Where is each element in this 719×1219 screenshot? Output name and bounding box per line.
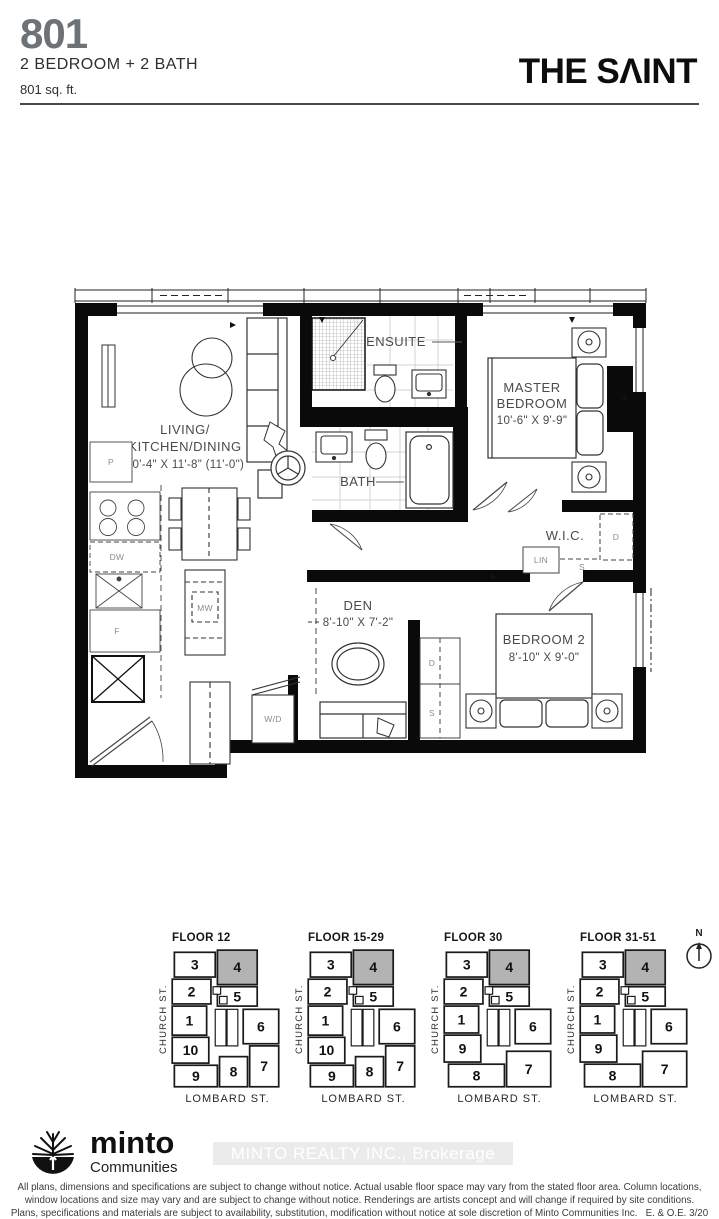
header-divider xyxy=(20,103,699,105)
keyplan-unit-number: 8 xyxy=(230,1064,238,1080)
keyplan-unit-number: 6 xyxy=(665,1018,673,1034)
unit-number: 801 xyxy=(20,10,87,58)
tv-console xyxy=(102,345,115,407)
keyplan-core xyxy=(621,987,629,995)
shower xyxy=(312,318,365,390)
keyplan-core xyxy=(628,996,636,1004)
eoe-note: E. & O.E. 3/20 xyxy=(646,1208,709,1219)
bath-toilet xyxy=(365,430,387,469)
keyplan-floor-3: FLOOR 30CHURCH ST.342516987LOMBARD ST. xyxy=(430,932,557,1105)
svg-text:LIVING/: LIVING/ xyxy=(160,422,210,437)
microwave-label: MW xyxy=(197,603,213,613)
keyplan-unit-number: 4 xyxy=(505,959,513,975)
keyplan-unit-number: 2 xyxy=(596,983,604,999)
keyplan-unit-number: 2 xyxy=(188,983,196,999)
keyplan-core xyxy=(356,996,364,1004)
keyplan-unit-number: 9 xyxy=(595,1040,603,1056)
keyplan-unit-number: 3 xyxy=(463,957,471,973)
lombard-street-label: LOMBARD ST. xyxy=(442,1093,557,1105)
keyplan-unit-number: 3 xyxy=(191,957,199,973)
bedroom2-closet xyxy=(420,638,460,738)
bedroom2-nightstands xyxy=(466,694,622,728)
keyplan-unit-number: 8 xyxy=(473,1067,481,1083)
entry-closet xyxy=(190,682,230,764)
window-band xyxy=(75,288,646,303)
keyplan-unit-number: 3 xyxy=(327,957,335,973)
keyplan-title: FLOOR 31-51 xyxy=(580,932,693,944)
bath-sink xyxy=(316,432,352,462)
svg-text:20'-4" X 11'-8" (11'-0"): 20'-4" X 11'-8" (11'-0") xyxy=(126,459,244,471)
unit-type: 2 BEDROOM + 2 BATH xyxy=(20,56,198,74)
ensuite-sink xyxy=(412,370,446,398)
hall-door xyxy=(330,524,362,550)
washer-dryer-label: W/D xyxy=(264,714,281,724)
minto-tree-icon xyxy=(28,1126,78,1176)
disclaimer-line-3: Plans, specifications and materials are … xyxy=(8,1208,711,1219)
keyplan-map: 342516987 xyxy=(442,948,554,1090)
bed2-dresser-label: D xyxy=(429,658,435,668)
logo-subtitle: Communities xyxy=(90,1159,178,1176)
dining-table xyxy=(169,488,250,560)
fridge-label: F xyxy=(114,626,120,636)
bathtub xyxy=(406,432,453,508)
keyplan-unit-number: 9 xyxy=(328,1068,336,1084)
keyplan-unit-number: 8 xyxy=(366,1064,374,1080)
keyplan-unit-number: 5 xyxy=(369,988,377,1004)
master-label: MASTER BEDROOM 10'-6" X 9'-9" xyxy=(497,380,568,427)
keyplan-unit-number: 9 xyxy=(459,1040,467,1056)
keyplan-title: FLOOR 15-29 xyxy=(308,932,421,944)
church-street-label: CHURCH ST. xyxy=(294,948,306,1090)
keyplan-core xyxy=(623,1009,634,1046)
shaft-column xyxy=(92,656,144,702)
brand-logo: THE SΛINT xyxy=(519,52,697,92)
keyplan-title: FLOOR 12 xyxy=(172,932,285,944)
keyplan-core xyxy=(227,1009,238,1046)
keyplan-floor-4: FLOOR 31-51CHURCH ST.342516987LOMBARD ST… xyxy=(566,932,693,1105)
bed2-shelf-label: S xyxy=(429,708,435,718)
church-street-label: CHURCH ST. xyxy=(430,948,442,1090)
keyplan-unit-number: 8 xyxy=(609,1067,617,1083)
keyplan-core xyxy=(485,987,493,995)
keyplans-row: FLOOR 12CHURCH ST.34251610987LOMBARD ST.… xyxy=(158,932,693,1105)
disclaimer-text: All plans, dimensions and specifications… xyxy=(8,1182,711,1219)
master-door xyxy=(473,482,507,510)
lombard-street-label: LOMBARD ST. xyxy=(170,1093,285,1105)
keyplan-unit-number: 7 xyxy=(396,1058,404,1074)
keyplan-core xyxy=(349,987,357,995)
keyplan-unit-number: 1 xyxy=(594,1011,602,1027)
lombard-street-label: LOMBARD ST. xyxy=(306,1093,421,1105)
entry-door xyxy=(90,717,163,766)
keyplan-core xyxy=(487,1009,498,1046)
svg-text:8'-10" X 9'-0": 8'-10" X 9'-0" xyxy=(509,652,579,664)
keyplan-map: 342516987 xyxy=(578,948,690,1090)
dishwasher-label: DW xyxy=(110,552,125,562)
wic-shelf-label: S xyxy=(579,562,585,572)
church-street-label: CHURCH ST. xyxy=(566,948,578,1090)
keyplan-unit-number: 7 xyxy=(661,1061,669,1077)
keyplan-unit-number: 6 xyxy=(529,1018,537,1034)
bedroom2-bed xyxy=(496,614,592,727)
master-nightstands xyxy=(572,328,606,492)
pantry-label: P xyxy=(108,457,114,467)
keyplan-core xyxy=(351,1009,362,1046)
keyplan-unit-number: 7 xyxy=(525,1061,533,1077)
bedroom2-door xyxy=(549,582,583,611)
keyplan-floor-2: FLOOR 15-29CHURCH ST.34251610987LOMBARD … xyxy=(294,932,421,1105)
unit-area: 801 sq. ft. xyxy=(20,82,77,97)
wic-label: W.I.C. xyxy=(546,528,584,543)
keyplan-unit-number: 4 xyxy=(233,959,241,975)
keyplan-core xyxy=(635,1009,646,1046)
disclaimer-line-1: All plans, dimensions and specifications… xyxy=(8,1182,711,1195)
den-label: DEN 8'-10" X 7'-2" xyxy=(323,598,393,629)
keyplan-unit-number: 10 xyxy=(319,1042,335,1058)
keyplan-core xyxy=(492,996,500,1004)
keyplan-unit-number: 5 xyxy=(641,988,649,1004)
minto-logo: minto Communities xyxy=(28,1126,178,1176)
north-arrow-icon xyxy=(684,939,714,971)
keyplan-floor-1: FLOOR 12CHURCH ST.34251610987LOMBARD ST. xyxy=(158,932,285,1105)
keyplan-unit-number: 1 xyxy=(186,1012,194,1028)
ensuite-label: ENSUITE xyxy=(366,334,426,349)
svg-text:10'-6" X 9'-9": 10'-6" X 9'-9" xyxy=(497,415,567,427)
keyplan-unit-number: 2 xyxy=(324,983,332,999)
svg-text:DEN: DEN xyxy=(344,598,373,613)
keyplan-unit-number: 4 xyxy=(369,959,377,975)
keyplan-unit-number: 5 xyxy=(233,988,241,1004)
svg-text:8'-10" X 7'-2": 8'-10" X 7'-2" xyxy=(323,617,393,629)
keyplan-unit-number: 4 xyxy=(641,959,649,975)
linen-label: LIN xyxy=(534,555,548,565)
disclaimer-line-2: window locations and size may vary and a… xyxy=(8,1195,711,1208)
keyplan-core xyxy=(215,1009,226,1046)
keyplan-unit-number: 10 xyxy=(183,1042,199,1058)
decor-circles xyxy=(180,338,232,416)
lombard-street-label: LOMBARD ST. xyxy=(578,1093,693,1105)
church-street-label: CHURCH ST. xyxy=(158,948,170,1090)
keyplan-unit-number: 6 xyxy=(257,1018,265,1034)
svg-text:BEDROOM 2: BEDROOM 2 xyxy=(503,632,586,647)
keyplan-core xyxy=(499,1009,510,1046)
north-indicator: N xyxy=(684,928,714,976)
brokerage-watermark: MINTO REALTY INC., Brokerage xyxy=(213,1142,513,1165)
keyplan-map: 34251610987 xyxy=(170,948,282,1090)
floorplan-page: 801 2 BEDROOM + 2 BATH 801 sq. ft. THE S… xyxy=(0,0,719,1219)
keyplan-core xyxy=(363,1009,374,1046)
keyplan-unit-number: 6 xyxy=(393,1018,401,1034)
keyplan-title: FLOOR 30 xyxy=(444,932,557,944)
keyplan-core xyxy=(213,987,221,995)
keyplan-unit-number: 1 xyxy=(322,1012,330,1028)
svg-text:BEDROOM: BEDROOM xyxy=(497,396,568,411)
sofa xyxy=(247,318,290,462)
living-room-label: LIVING/ KITCHEN/DINING 20'-4" X 11'-8" (… xyxy=(126,422,244,471)
keyplan-unit-number: 3 xyxy=(599,957,607,973)
logo-name: minto xyxy=(90,1127,178,1158)
svg-text:MASTER: MASTER xyxy=(503,380,560,395)
svg-text:KITCHEN/DINING: KITCHEN/DINING xyxy=(128,439,241,454)
wic-dresser-label: D xyxy=(613,532,619,542)
keyplan-map: 34251610987 xyxy=(306,948,418,1090)
keyplan-unit-number: 9 xyxy=(192,1068,200,1084)
floorplan-drawing: ENSUITE BATH LIVING/ KITCHEN/DINING 20'-… xyxy=(60,270,660,800)
keyplan-unit-number: 2 xyxy=(460,983,468,999)
ensuite-toilet xyxy=(374,365,396,402)
keyplan-unit-number: 1 xyxy=(458,1011,466,1027)
keyplan-unit-number: 7 xyxy=(260,1058,268,1074)
north-label: N xyxy=(684,928,714,939)
keyplan-unit-number: 5 xyxy=(505,988,513,1004)
keyplan-core xyxy=(220,996,228,1004)
bath-label: BATH xyxy=(340,474,376,489)
